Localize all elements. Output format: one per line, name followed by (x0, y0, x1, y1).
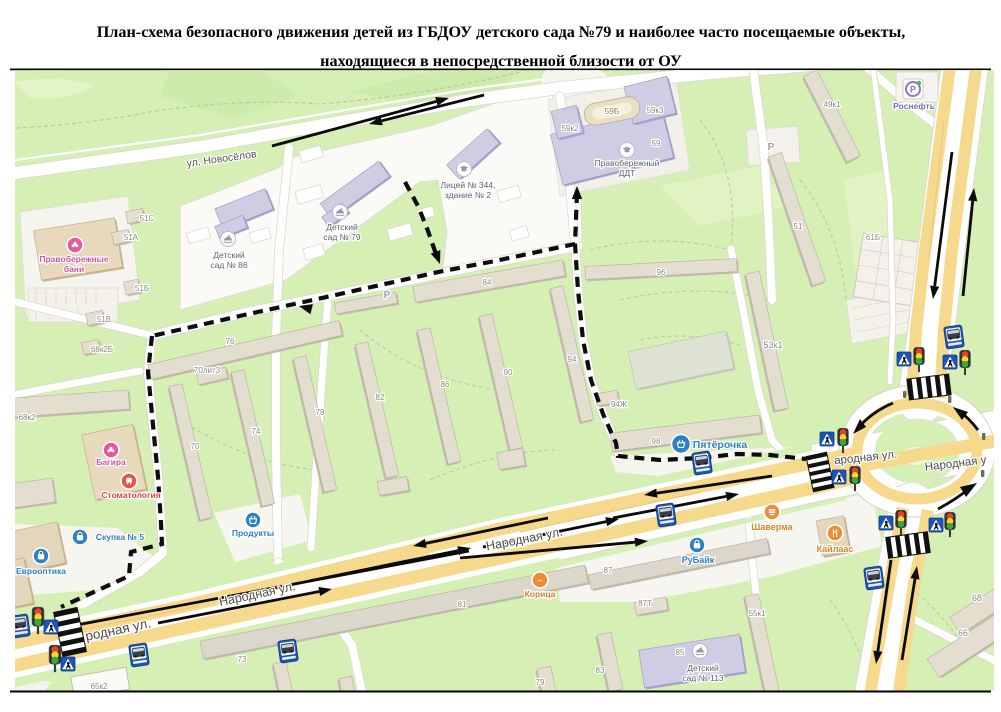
svg-text:План-схема безопасного движени: План-схема безопасного движения детей из… (97, 23, 906, 41)
svg-text:84: 84 (483, 278, 492, 287)
svg-text:Шаверма: Шаверма (751, 522, 793, 532)
svg-text:Корица: Корица (525, 589, 556, 599)
svg-text:Р: Р (384, 290, 391, 301)
svg-text:Лицей № 344,: Лицей № 344, (441, 180, 496, 190)
svg-text:94: 94 (568, 355, 577, 364)
svg-text:85: 85 (676, 648, 685, 657)
svg-text:59к2: 59к2 (562, 124, 579, 133)
svg-text:Кайлаас: Кайлаас (817, 544, 854, 554)
svg-text:66: 66 (958, 628, 968, 638)
svg-text:70лит3: 70лит3 (194, 366, 221, 375)
svg-text:Еврооптика: Еврооптика (16, 566, 66, 576)
svg-text:сад № 86: сад № 86 (210, 260, 248, 270)
svg-text:70: 70 (191, 442, 200, 451)
svg-text:55к1: 55к1 (749, 609, 766, 618)
svg-text:73: 73 (238, 655, 247, 664)
svg-text:Детский: Детский (213, 250, 245, 260)
svg-text:83: 83 (596, 666, 605, 675)
svg-text:98: 98 (652, 437, 661, 446)
svg-text:68к2Б: 68к2Б (91, 345, 113, 354)
svg-text:51: 51 (794, 222, 803, 231)
svg-text:68: 68 (972, 593, 982, 603)
svg-text:находящиеся в непосредственной: находящиеся в непосредственной близости … (320, 52, 682, 70)
svg-text:Правобережный: Правобережный (595, 158, 660, 168)
svg-text:РуБайк: РуБайк (682, 555, 715, 565)
svg-text:79: 79 (536, 678, 545, 687)
svg-text:P: P (910, 85, 916, 95)
svg-text:здание № 2: здание № 2 (445, 190, 491, 200)
svg-text:74: 74 (252, 427, 261, 436)
svg-text:90: 90 (504, 368, 513, 377)
svg-text:53к1: 53к1 (764, 340, 783, 350)
svg-text:сад № 79: сад № 79 (323, 232, 361, 242)
svg-text:Р: Р (768, 142, 775, 153)
svg-text:Продукты: Продукты (232, 528, 274, 538)
svg-text:82: 82 (376, 393, 385, 402)
svg-text:Детский: Детский (326, 222, 358, 232)
svg-text:68к2: 68к2 (19, 413, 36, 422)
svg-text:бани: бани (64, 264, 84, 274)
svg-text:Роснефть: Роснефть (893, 101, 935, 111)
svg-text:Правобережные: Правобережные (39, 254, 109, 264)
svg-text:49к1: 49к1 (824, 100, 841, 109)
svg-text:Скупка № 5: Скупка № 5 (96, 532, 144, 542)
svg-text:51А: 51А (124, 233, 139, 242)
svg-text:ДДТ: ДДТ (619, 168, 636, 178)
svg-text:51Б: 51Б (135, 284, 149, 293)
svg-text:65к2: 65к2 (91, 682, 108, 691)
svg-text:59: 59 (652, 139, 661, 148)
svg-text:51С: 51С (140, 214, 155, 223)
svg-text:87: 87 (604, 566, 613, 575)
svg-text:сад № 113: сад № 113 (682, 673, 724, 683)
svg-text:Пятёрочка: Пятёрочка (693, 439, 748, 451)
svg-text:87Т: 87Т (638, 599, 652, 608)
svg-text:59к3: 59к3 (647, 106, 664, 115)
svg-text:Детский: Детский (687, 663, 719, 673)
svg-text:59Б: 59Б (604, 106, 619, 116)
svg-text:Стоматология: Стоматология (101, 490, 160, 500)
svg-text:94Ж: 94Ж (611, 400, 628, 409)
svg-text:96: 96 (657, 268, 666, 277)
svg-text:76: 76 (226, 337, 235, 346)
svg-text:86: 86 (441, 380, 450, 389)
svg-text:61Б: 61Б (866, 233, 880, 242)
svg-text:81: 81 (458, 600, 467, 609)
svg-text:Багира: Багира (96, 457, 126, 467)
svg-text:51В: 51В (97, 315, 111, 324)
svg-text:78: 78 (316, 408, 325, 417)
